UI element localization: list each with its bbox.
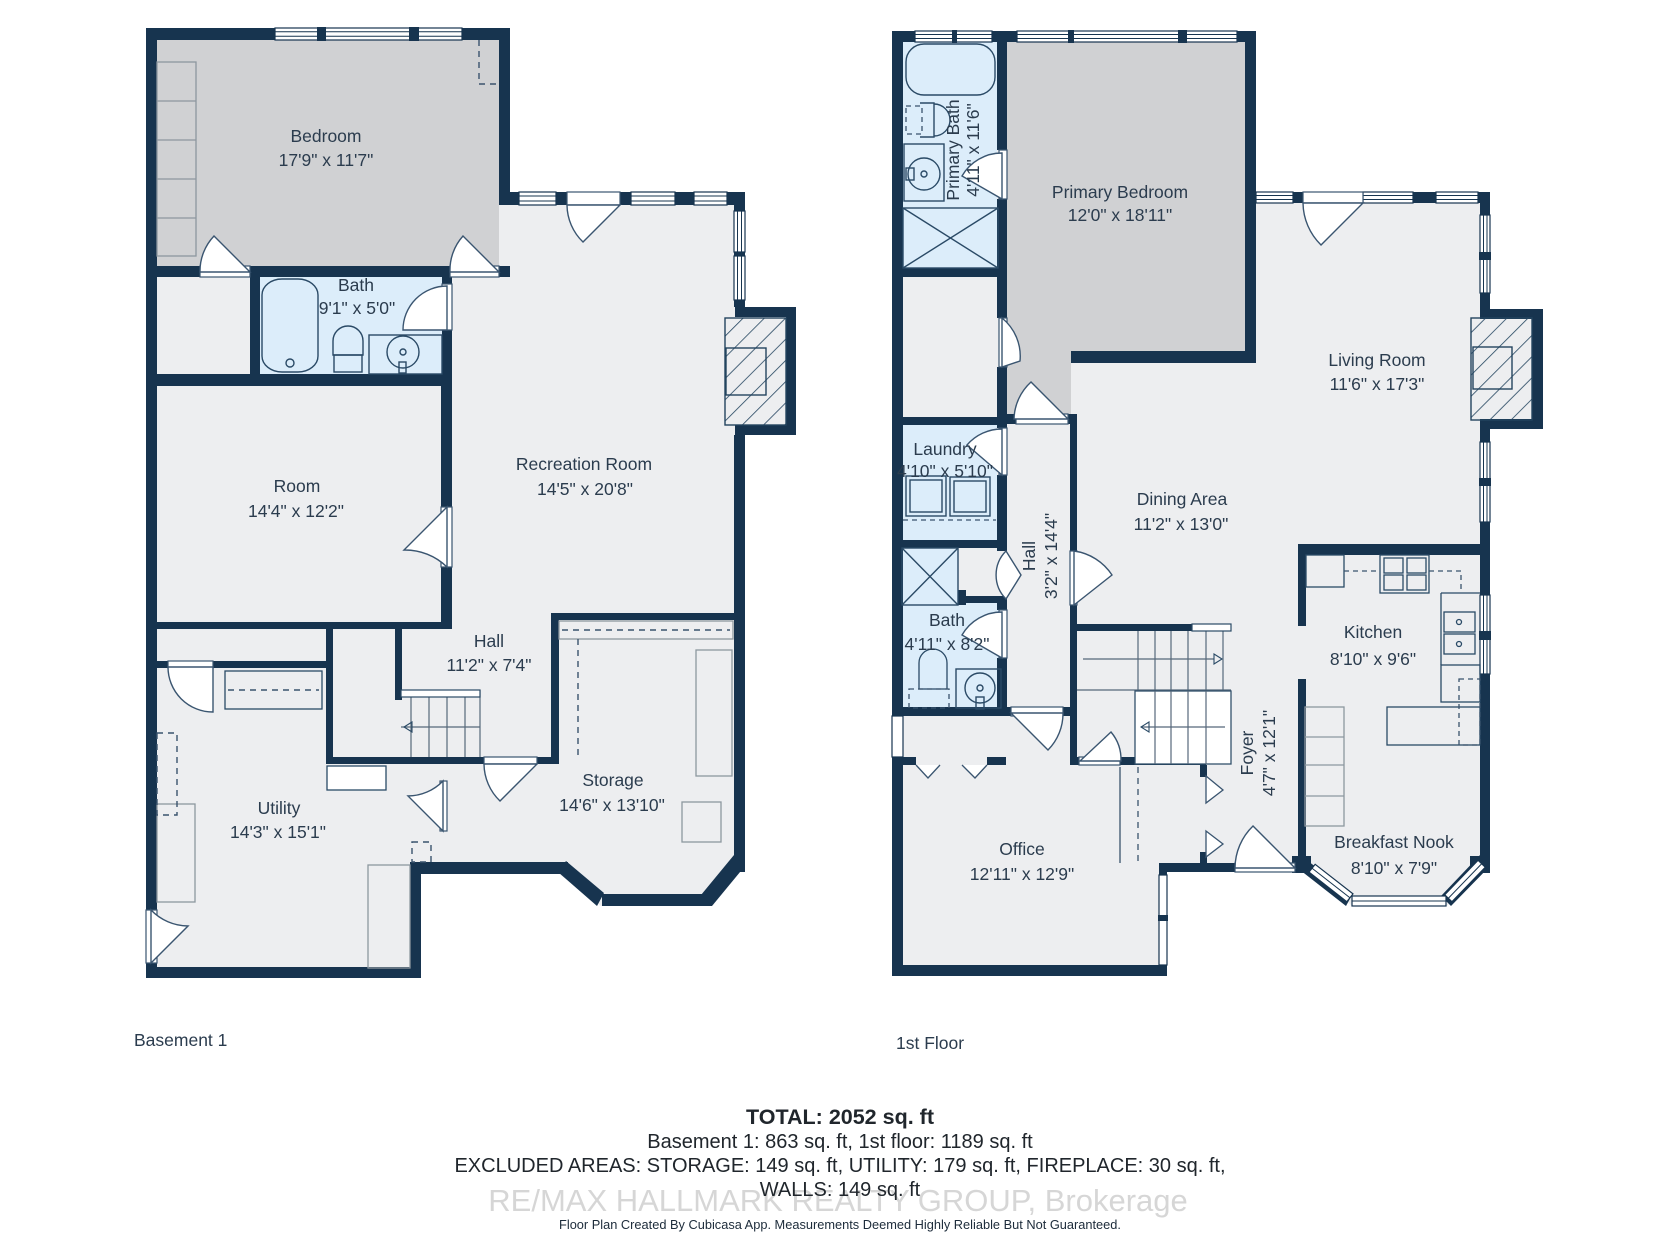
svg-text:Dining Area: Dining Area: [1137, 489, 1228, 509]
svg-text:14'5" x 20'8": 14'5" x 20'8": [537, 479, 633, 499]
svg-text:TOTAL: 2052 sq. ft: TOTAL: 2052 sq. ft: [746, 1105, 934, 1129]
svg-text:8'10" x 7'9": 8'10" x 7'9": [1351, 858, 1437, 878]
svg-text:4'10" x 5'10": 4'10" x 5'10": [897, 461, 993, 481]
svg-text:1st Floor: 1st Floor: [896, 1033, 964, 1053]
svg-text:Room: Room: [274, 476, 321, 496]
svg-text:4'11" x 8'2": 4'11" x 8'2": [905, 634, 990, 654]
svg-text:Basement 1: 863 sq. ft, 1st fl: Basement 1: 863 sq. ft, 1st floor: 1189 …: [647, 1131, 1033, 1153]
svg-text:Foyer: Foyer: [1237, 730, 1257, 775]
svg-text:Living Room: Living Room: [1328, 350, 1425, 370]
svg-text:Recreation Room: Recreation Room: [516, 454, 652, 474]
svg-text:11'2" x 13'0": 11'2" x 13'0": [1134, 514, 1229, 534]
svg-text:EXCLUDED AREAS: STORAGE: 149 s: EXCLUDED AREAS: STORAGE: 149 sq. ft, UTI…: [454, 1155, 1225, 1177]
svg-text:Bath: Bath: [929, 610, 965, 630]
svg-text:14'6" x 13'10": 14'6" x 13'10": [559, 795, 665, 815]
svg-text:14'4" x 12'2": 14'4" x 12'2": [248, 501, 344, 521]
svg-text:3'2" x 14'4": 3'2" x 14'4": [1041, 513, 1061, 599]
svg-text:12'11" x 12'9": 12'11" x 12'9": [970, 864, 1074, 884]
svg-text:Floor Plan Created By Cubicasa: Floor Plan Created By Cubicasa App. Meas…: [559, 1217, 1121, 1232]
svg-text:Bedroom: Bedroom: [290, 126, 361, 146]
svg-text:Kitchen: Kitchen: [1344, 622, 1402, 642]
svg-text:Bath: Bath: [338, 275, 374, 295]
svg-text:Basement 1: Basement 1: [134, 1030, 227, 1050]
svg-text:8'10" x 9'6": 8'10" x 9'6": [1330, 649, 1416, 669]
svg-text:Laundry: Laundry: [913, 439, 976, 459]
svg-text:Hall: Hall: [474, 631, 504, 651]
svg-text:9'1" x 5'0": 9'1" x 5'0": [319, 298, 396, 318]
svg-text:Primary Bath: Primary Bath: [943, 99, 963, 200]
svg-text:Primary Bedroom: Primary Bedroom: [1052, 182, 1188, 202]
svg-text:Breakfast Nook: Breakfast Nook: [1334, 832, 1454, 852]
svg-text:WALLS: 149 sq. ft: WALLS: 149 sq. ft: [760, 1179, 921, 1201]
svg-text:11'2" x 7'4": 11'2" x 7'4": [447, 655, 532, 675]
svg-text:4'11" x 11'6": 4'11" x 11'6": [963, 103, 983, 196]
svg-text:Utility: Utility: [258, 798, 301, 818]
svg-text:4'7" x 12'1": 4'7" x 12'1": [1259, 710, 1279, 796]
svg-text:12'0" x 18'11": 12'0" x 18'11": [1068, 205, 1172, 225]
svg-text:Office: Office: [999, 839, 1044, 859]
svg-text:Storage: Storage: [582, 770, 643, 790]
svg-text:11'6" x 17'3": 11'6" x 17'3": [1330, 374, 1425, 394]
svg-text:17'9" x 11'7": 17'9" x 11'7": [279, 150, 374, 170]
svg-text:14'3" x 15'1": 14'3" x 15'1": [230, 822, 326, 842]
svg-text:Hall: Hall: [1019, 541, 1039, 571]
